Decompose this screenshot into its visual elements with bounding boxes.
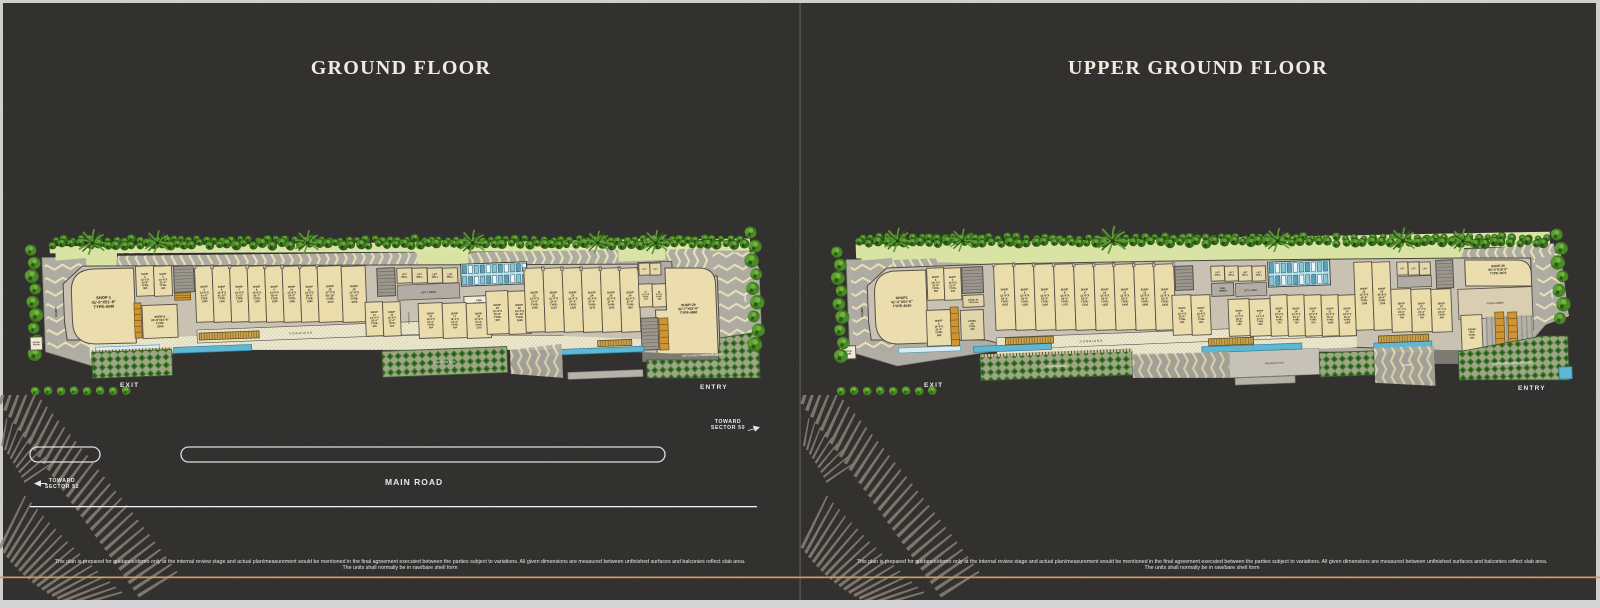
svg-text:1830: 1830	[1162, 302, 1169, 306]
svg-text:ROOM: ROOM	[33, 344, 40, 346]
svg-text:RAMP: RAMP	[1550, 289, 1554, 299]
svg-text:800: 800	[1199, 321, 1204, 324]
svg-text:1445: 1445	[1122, 302, 1129, 306]
svg-text:RAMP: RAMP	[743, 293, 747, 303]
svg-text:1175: 1175	[476, 326, 482, 329]
svg-text:970: 970	[495, 318, 500, 322]
svg-text:WELL: WELL	[447, 276, 454, 278]
svg-text:1220: 1220	[570, 305, 577, 309]
svg-text:1060: 1060	[157, 324, 164, 328]
svg-text:WELL: WELL	[1242, 274, 1249, 276]
svg-text:760: 760	[1420, 316, 1425, 319]
svg-text:860: 860	[628, 305, 633, 309]
svg-text:970: 970	[1311, 321, 1316, 324]
svg-text:TYPE-115: TYPE-115	[968, 302, 979, 304]
svg-text:1210: 1210	[551, 305, 558, 309]
svg-text:1160: 1160	[1042, 302, 1048, 306]
svg-text:RAMP: RAMP	[860, 306, 864, 316]
svg-text:350: 350	[1470, 336, 1475, 339]
svg-text:1750: 1750	[327, 300, 334, 304]
svg-text:1390: 1390	[307, 299, 313, 303]
svg-text:1105: 1105	[608, 305, 614, 309]
svg-text:600: 600	[951, 290, 956, 293]
svg-text:1800: 1800	[1142, 302, 1149, 306]
svg-text:1070: 1070	[589, 305, 596, 309]
svg-text:660: 660	[937, 333, 942, 337]
svg-text:TYPE-4040: TYPE-4040	[94, 304, 116, 310]
svg-text:TYPE-4040: TYPE-4040	[893, 304, 912, 309]
svg-text:WELL: WELL	[432, 276, 439, 278]
svg-text:1795: 1795	[1379, 301, 1385, 305]
svg-text:760: 760	[1400, 316, 1405, 319]
svg-text:TOWER: TOWER	[1219, 290, 1228, 292]
svg-text:1040: 1040	[517, 318, 524, 322]
svg-text:WELL: WELL	[401, 276, 408, 278]
svg-text:1365: 1365	[289, 299, 295, 303]
svg-text:1170: 1170	[1062, 302, 1068, 306]
svg-text:1260: 1260	[272, 299, 278, 303]
svg-text:TYPE-1670: TYPE-1670	[1490, 271, 1507, 276]
svg-text:GATE LOBBY: GATE LOBBY	[1487, 301, 1505, 306]
svg-text:560: 560	[429, 326, 434, 329]
svg-text:1020: 1020	[1002, 302, 1009, 306]
svg-text:580: 580	[143, 287, 148, 290]
svg-text:580: 580	[934, 290, 939, 293]
svg-text:1120: 1120	[254, 299, 260, 303]
svg-text:1150: 1150	[1022, 302, 1028, 306]
svg-text:760: 760	[1294, 321, 1299, 324]
svg-text:RAMP: RAMP	[54, 306, 58, 316]
svg-text:1540: 1540	[532, 305, 539, 309]
svg-text:1390: 1390	[1345, 321, 1351, 324]
svg-text:RAMP: RAMP	[1402, 363, 1411, 367]
svg-text:760: 760	[1277, 321, 1282, 324]
svg-text:1310: 1310	[1082, 302, 1089, 306]
svg-text:WELL: WELL	[1228, 274, 1235, 276]
svg-text:1165: 1165	[1361, 301, 1367, 305]
svg-text:1425: 1425	[1102, 302, 1109, 306]
svg-text:520: 520	[373, 325, 378, 328]
svg-text:WELL: WELL	[416, 276, 423, 278]
svg-text:1110: 1110	[237, 299, 243, 303]
svg-text:1045: 1045	[1328, 321, 1334, 324]
svg-text:WELL: WELL	[1256, 274, 1263, 276]
svg-text:600: 600	[161, 287, 166, 290]
svg-text:630: 630	[453, 326, 458, 329]
svg-text:LIFT LOBBY: LIFT LOBBY	[421, 290, 437, 295]
svg-text:800: 800	[390, 325, 395, 328]
svg-text:1100: 1100	[219, 299, 225, 303]
svg-text:660: 660	[1440, 316, 1445, 319]
svg-text:WELL: WELL	[1215, 274, 1222, 276]
svg-text:520: 520	[1180, 321, 1185, 324]
svg-text:TYPE-4860: TYPE-4860	[680, 310, 698, 315]
svg-text:1020: 1020	[202, 299, 208, 303]
svg-text:1765: 1765	[351, 300, 358, 304]
